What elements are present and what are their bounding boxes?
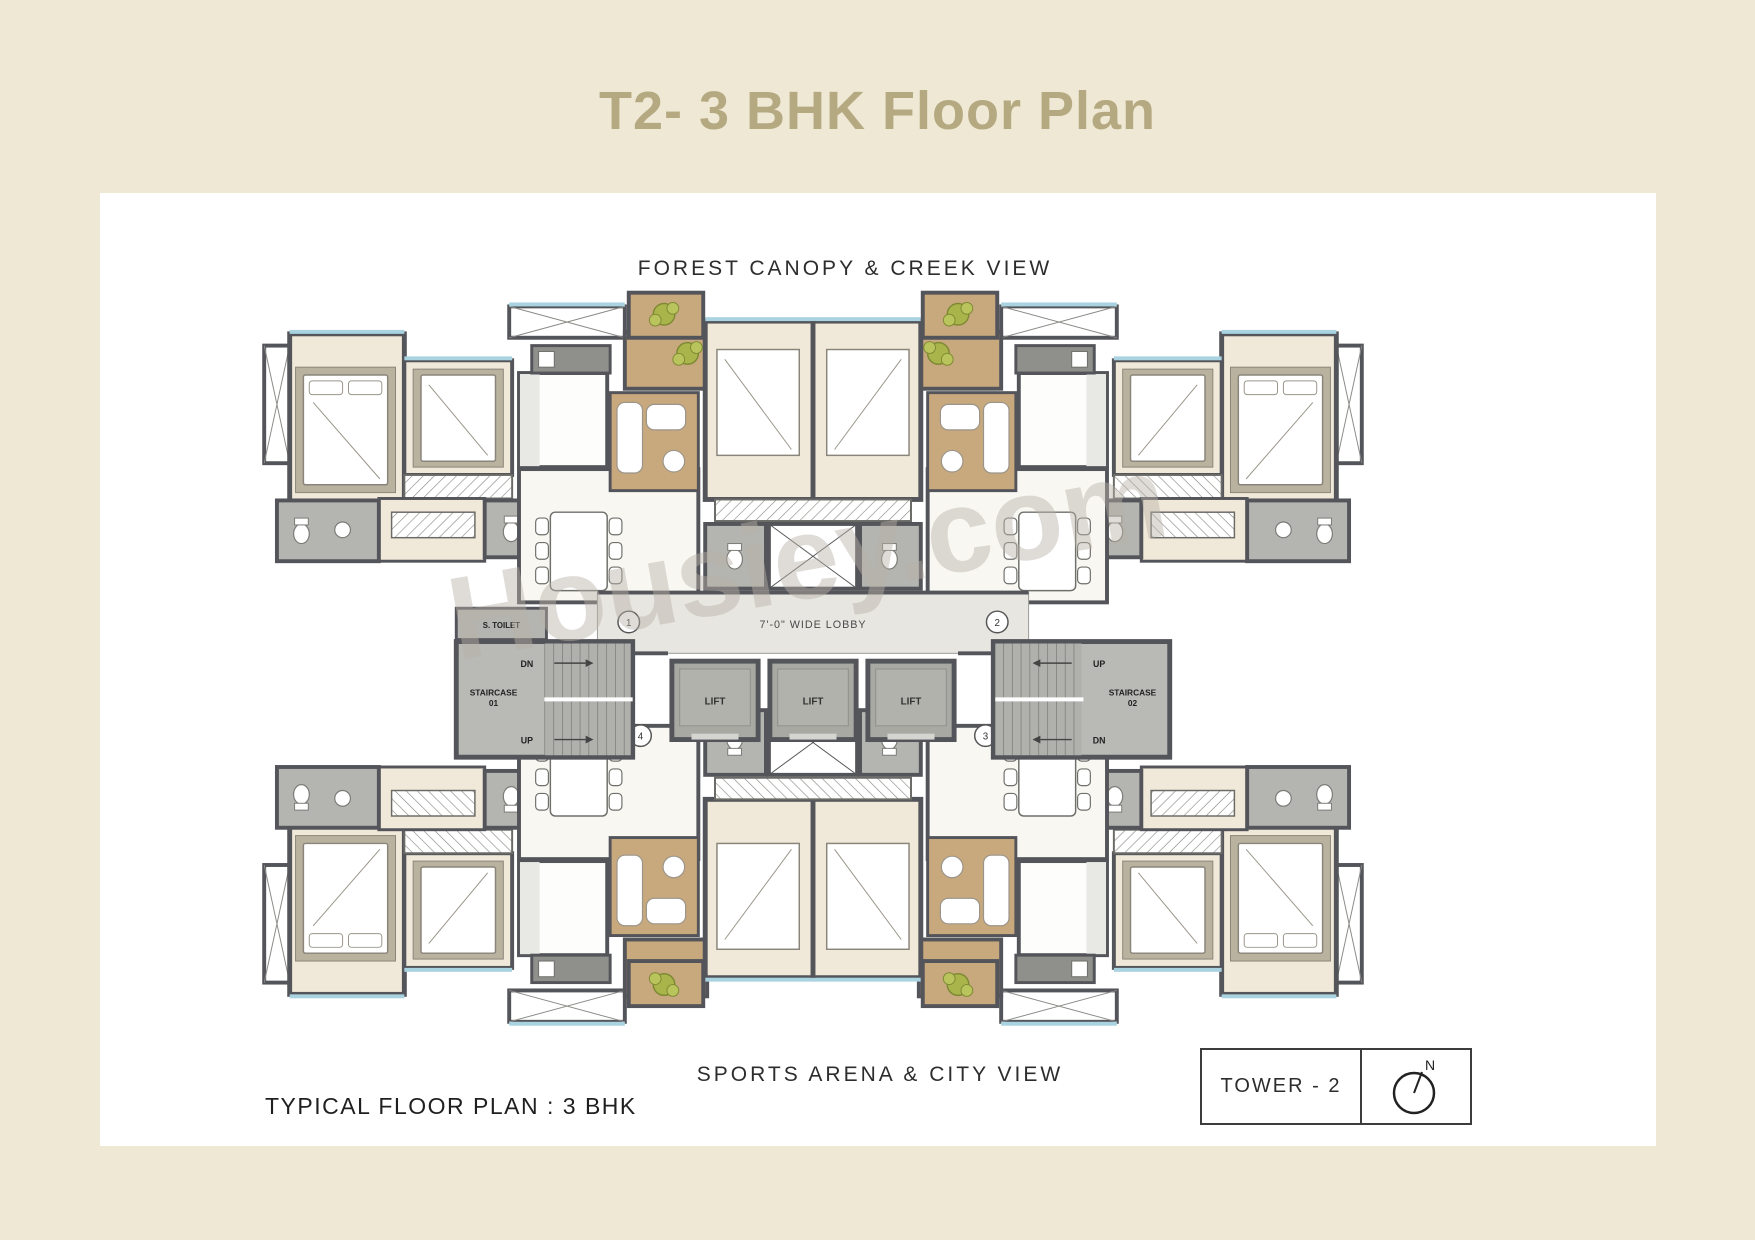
svg-text:STAIRCASE: STAIRCASE	[1109, 687, 1157, 697]
staircase-02: STAIRCASE 02 UP DN	[993, 642, 1169, 758]
svg-text:LIFT: LIFT	[705, 696, 726, 707]
svg-text:1: 1	[626, 618, 631, 629]
svg-text:DN: DN	[1093, 735, 1106, 745]
lift-3: LIFT	[868, 661, 954, 739]
svg-text:3: 3	[983, 732, 989, 743]
servant-toilet-label: S. TOILET	[483, 621, 520, 630]
svg-text:2: 2	[995, 618, 1000, 629]
lobby-label: 7'-0" WIDE LOBBY	[759, 619, 866, 631]
north-arrow-icon: N	[1385, 1056, 1447, 1118]
floor-plan-page: T2- 3 BHK Floor Plan FOREST CANOPY & CRE…	[0, 0, 1755, 1240]
unit-marker-1: 1	[618, 611, 640, 633]
page-title: T2- 3 BHK Floor Plan	[0, 80, 1755, 142]
svg-text:4: 4	[638, 732, 644, 743]
svg-text:UP: UP	[1093, 659, 1105, 669]
floor-plan-svg: 7'-0" WIDE LOBBY 1 2 4 3	[238, 277, 1388, 1061]
svg-text:LIFT: LIFT	[803, 696, 824, 707]
plan-panel: FOREST CANOPY & CREEK VIEW Housiey.com	[100, 193, 1656, 1146]
floor-plan-drawing: 7'-0" WIDE LOBBY 1 2 4 3	[238, 277, 1388, 1061]
svg-text:STAIRCASE: STAIRCASE	[470, 687, 518, 697]
tower-legend-box: TOWER - 2 N	[1200, 1048, 1472, 1125]
svg-text:02: 02	[1128, 698, 1138, 708]
svg-text:LIFT: LIFT	[901, 696, 922, 707]
lift-1: LIFT	[672, 661, 758, 739]
unit-marker-2: 2	[986, 611, 1008, 633]
tower-label: TOWER - 2	[1202, 1050, 1362, 1123]
svg-text:N: N	[1425, 1057, 1435, 1073]
svg-text:DN: DN	[520, 659, 533, 669]
plan-caption: TYPICAL FLOOR PLAN : 3 BHK	[265, 1093, 637, 1120]
compass: N	[1362, 1050, 1470, 1123]
lift-2: LIFT	[770, 661, 856, 739]
svg-text:UP: UP	[521, 735, 533, 745]
svg-text:01: 01	[489, 698, 499, 708]
